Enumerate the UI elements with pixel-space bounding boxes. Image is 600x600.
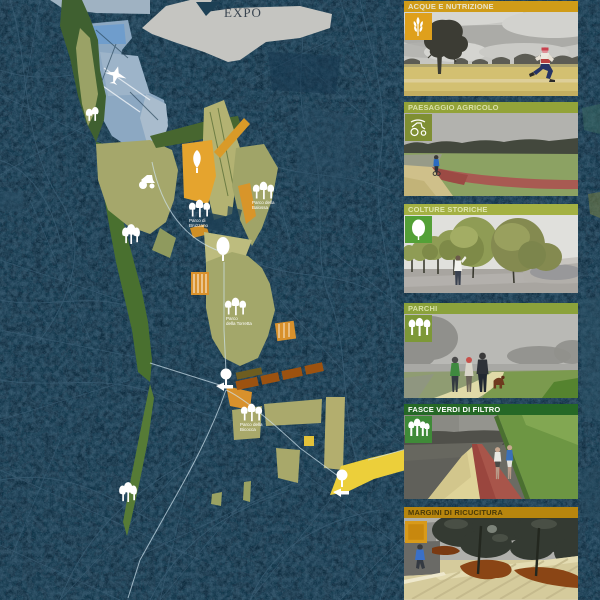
svg-text:Bicocca: Bicocca [240, 427, 256, 432]
svg-text:della Torretta: della Torretta [226, 321, 252, 326]
svg-text:Balossa: Balossa [252, 205, 269, 210]
svg-text:EXPO: EXPO [224, 5, 262, 20]
svg-text:Bruzzano: Bruzzano [189, 223, 209, 228]
